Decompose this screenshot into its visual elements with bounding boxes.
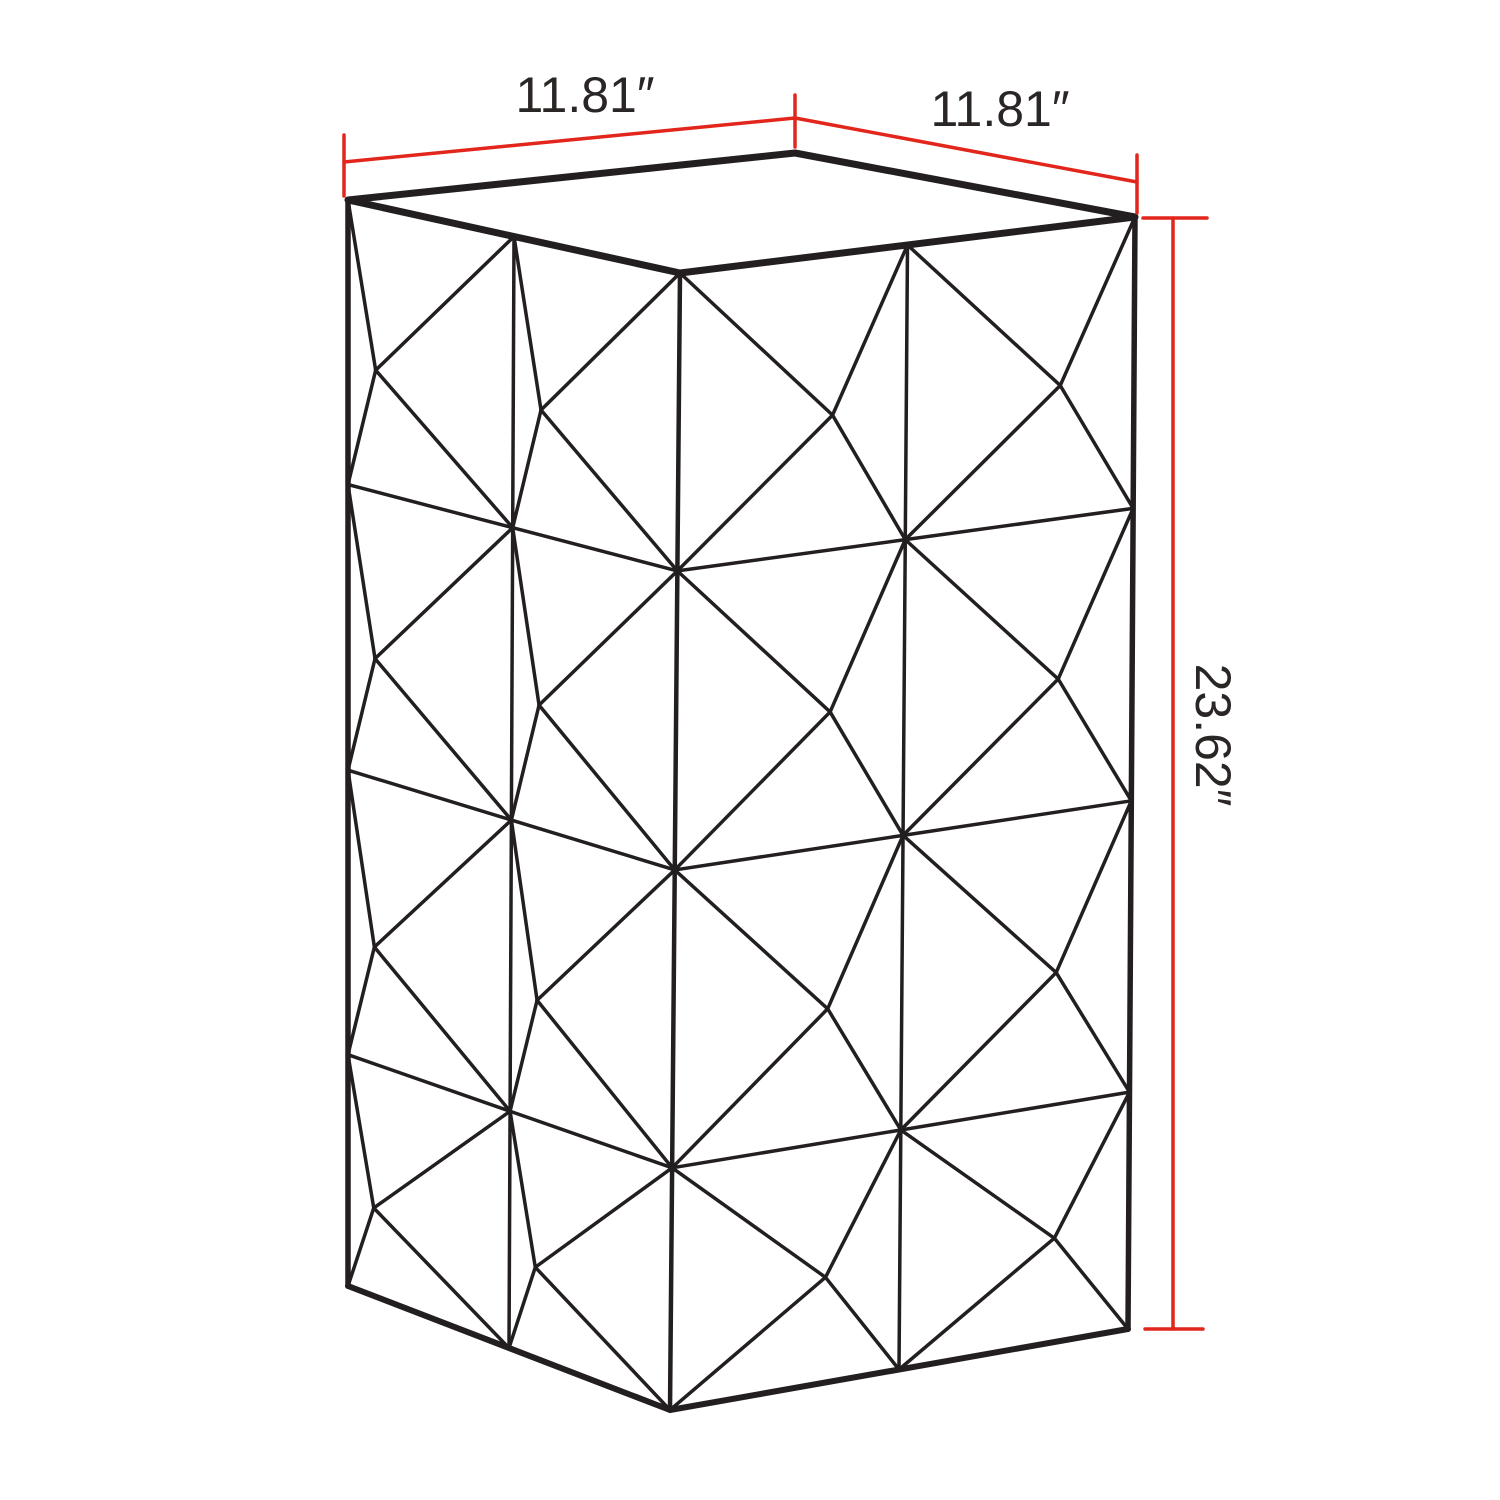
height-dimension-label: 23.62″ xyxy=(1185,664,1241,807)
depth-dimension-label: 11.81″ xyxy=(930,81,1069,137)
diagram-canvas: 11.81″ 11.81″ 23.62″ xyxy=(0,0,1500,1500)
width-dimension-label: 11.81″ xyxy=(515,67,654,123)
right-face-pattern xyxy=(670,217,1135,1410)
box-edges xyxy=(348,153,1135,1410)
left-face-pattern xyxy=(348,200,680,1410)
top-face xyxy=(348,153,1135,273)
pedestal-dimension-diagram: 11.81″ 11.81″ 23.62″ xyxy=(0,0,1500,1500)
